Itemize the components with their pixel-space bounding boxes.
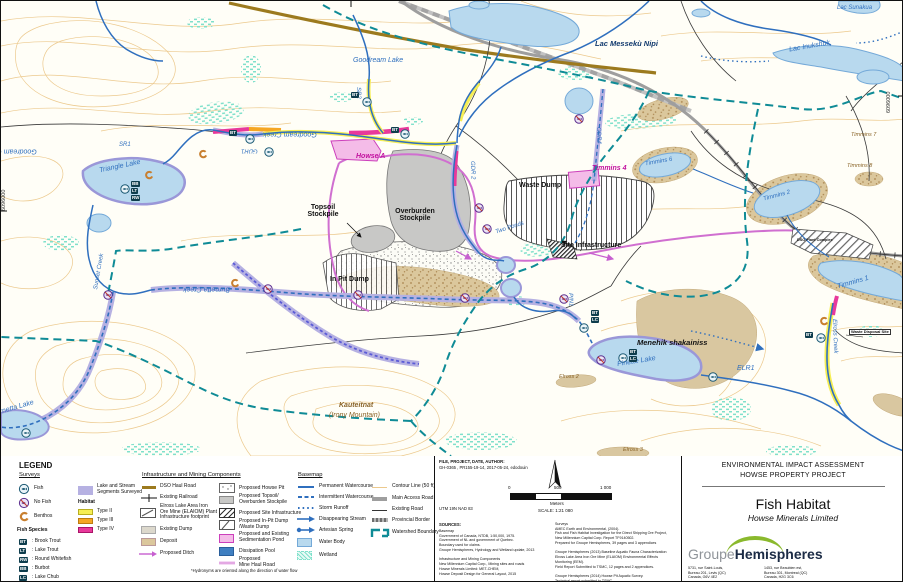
legend-species-code: BT [19,539,27,545]
legend-item: Contour Line (50 ft) [392,484,435,490]
species-tag-bt: BT [229,130,237,136]
sedimentation-pond-swatch [219,534,234,543]
logo-groupe-text: Groupe [688,546,735,562]
segments-surveyed-swatch [78,486,93,495]
provincial-border-swatch [371,517,389,523]
existing-dump-swatch [141,526,156,534]
legend-habitat-header: Habitat [78,500,95,506]
company-logo: GroupeHemispheres [688,546,823,564]
elaiom-footprint-swatch [140,508,156,518]
dso-haul-road [229,3,656,73]
goodream-lake [449,4,579,47]
fish-icon [18,483,30,495]
legend-species-code: LC [19,575,27,581]
address-montreal: 1453, rue Beaubien est, Bureau 301, Mont… [764,566,807,580]
species-tag-lc: LC [591,317,599,323]
file-value: GH-0365 , PR155-19-14, 2017-05-24, edodo… [439,465,528,470]
legend-item: Water Body [319,540,345,546]
logo-hemispheres-text: Hemispheres [735,546,823,562]
legend-species-name: : Lake Trout [32,548,58,554]
species-tag-bt: BT [805,332,813,338]
sources-left: Basemap Government of Canada, NTDB, 1:50… [439,529,551,576]
scale-label: SCALE: 1:21 080 [538,508,573,513]
legend-item: Storm Runoff [319,506,348,512]
main-access-road-swatch [372,497,387,501]
water-body-swatch [297,538,312,547]
figure-subtitle: Howse Minerals Limited [682,513,903,523]
artesian-spring-swatch [296,526,316,534]
scale-unit: Meters [550,501,564,506]
overburden-stockpile-area [387,150,471,252]
intermittent-watercourse-swatch [297,494,315,500]
legend-species-name: : Lake Chub [32,575,59,581]
legend-item: Proposed Howse Pit [239,486,284,492]
habitat-type3-swatch [78,518,93,524]
permanent-watercourse-swatch [298,486,314,488]
deposit-swatch [141,538,156,546]
disappearing-stream-swatch [296,515,316,523]
legend-species-name: : Brook Trout [32,539,61,545]
legend-item: Proposed Site Infrastructure [239,511,301,517]
species-tag-bt: BT [351,92,359,98]
legend-species-code: BB [19,566,28,572]
species-tag-lt: LT [131,188,138,194]
legend-item: Existing Dump [160,527,192,533]
project-line2: HOWSE PROPERTY PROJECT [682,472,903,479]
proposed-howse-pit-swatch [219,483,235,493]
legend-item: DSO Haul Road [160,484,196,490]
legend-item: Main Access Road [392,496,433,502]
in-pit-dump-swatch [219,520,235,530]
legend-type4-label: Type IV [97,527,114,533]
legend-item: Permanent Watercourse [319,484,373,490]
legend-item: Intermittent Watercourse [319,495,374,501]
no-fish-icon [18,497,30,509]
mine-haul-road-swatch [218,559,236,567]
topsoil-overburden-swatch [219,496,234,504]
dissipation-pool-swatch [219,547,234,556]
sources-header: SOURCES: [439,522,461,527]
species-tag-bt: BT [629,349,637,355]
species-tag-rw: RW [131,195,140,201]
wetland-swatch [297,551,312,560]
legend-item: Existing Railroad [160,495,198,501]
legend-item: Proposed Ditch [160,551,194,557]
legend-basemap-header: Basemap [298,472,323,478]
utm-label: UTM 19N NAD 83 [439,506,473,511]
scale-tick-1000: 1 000 [600,485,611,490]
legend-item: Wetland [319,553,337,559]
legend-no-fish-label: No Fish [34,500,51,506]
legend-fish-label: Fish [34,486,43,492]
contour-line-swatch [372,487,387,488]
legend-footnote: *Hydronyms are oriented along the direct… [191,568,297,573]
existing-road-swatch [372,510,387,511]
legend-item: Disappearing Stream [319,517,366,523]
scale-bar [510,493,612,500]
legend-species-name: : Round Whitefish [32,557,71,563]
address-levis: 5731, rue Saint-Louis, Bureau 201, Levis… [688,566,726,580]
sources-right: Surveys AMEC Earth and Environmental, (2… [555,522,679,582]
species-tag-bb: BB [131,181,140,187]
scale-tick-0: 0 [508,485,511,490]
legend-item: Deposit [160,539,177,545]
legend-item: Artesian Spring [319,528,353,534]
legend-type2-label: Type II [97,509,112,515]
watershed-boundary-swatch [370,527,390,539]
storm-runoff-swatch [297,505,315,511]
legend-item: Watershed Boundary [392,530,439,536]
proposed-ditch-swatch [138,550,158,558]
streams [87,1,903,451]
benthos-icon [18,511,30,523]
legend-species-code: RW [19,557,28,563]
map-graphics [1,1,903,456]
dso-haul-road-swatch [142,486,156,489]
legend-fish-species-header: Fish Species [17,528,48,534]
legend-surveys-header: Surveys [19,472,40,478]
figure-title: Fish Habitat [682,496,903,512]
existing-railroad-swatch [140,494,158,502]
legend-benthos-label: Benthos [34,514,52,520]
site-infrastructure-swatch [219,508,235,518]
legend-species-code: LT [19,548,26,554]
species-tag-lc: LC [629,356,637,362]
species-tag-bt: BT [591,310,599,316]
habitat-type4-swatch [78,527,93,533]
legend-panel: LEGEND Surveys Fish No Fish Benthos Fish… [1,456,434,582]
map-canvas[interactable]: 6096000 6096000 Goodream Lake Goodream C… [1,1,903,457]
legend-item: Provincial Border [392,518,430,524]
species-tag-bt: BT [391,127,399,133]
file-header: FILE, PROJECT, DATE, AUTHOR: [439,459,505,464]
info-panel: FILE, PROJECT, DATE, AUTHOR: GH-0365 , P… [434,456,681,582]
bottom-strip: LEGEND Surveys Fish No Fish Benthos Fish… [1,456,903,582]
legend-item: Existing Road [392,507,423,513]
dso-plant-complex-area [791,229,873,259]
scale-tick-500: 500 [554,485,562,490]
legend-infrastructure-header: Infrastructure and Mining Components [142,472,241,478]
legend-type3-label: Type III [97,518,113,524]
map-sheet: 6096000 6096000 Goodream Lake Goodream C… [0,0,903,582]
habitat-type2-swatch [78,509,93,515]
legend-species-name: : Burbot [32,566,50,572]
legend-title: LEGEND [19,461,52,470]
project-line1: ENVIRONMENTAL IMPACT ASSESSMENT [682,462,903,469]
title-panel: ENVIRONMENTAL IMPACT ASSESSMENT HOWSE PR… [681,456,903,582]
legend-item: Dissipation Pool [239,549,275,555]
in-pit-dump-area [323,254,399,311]
